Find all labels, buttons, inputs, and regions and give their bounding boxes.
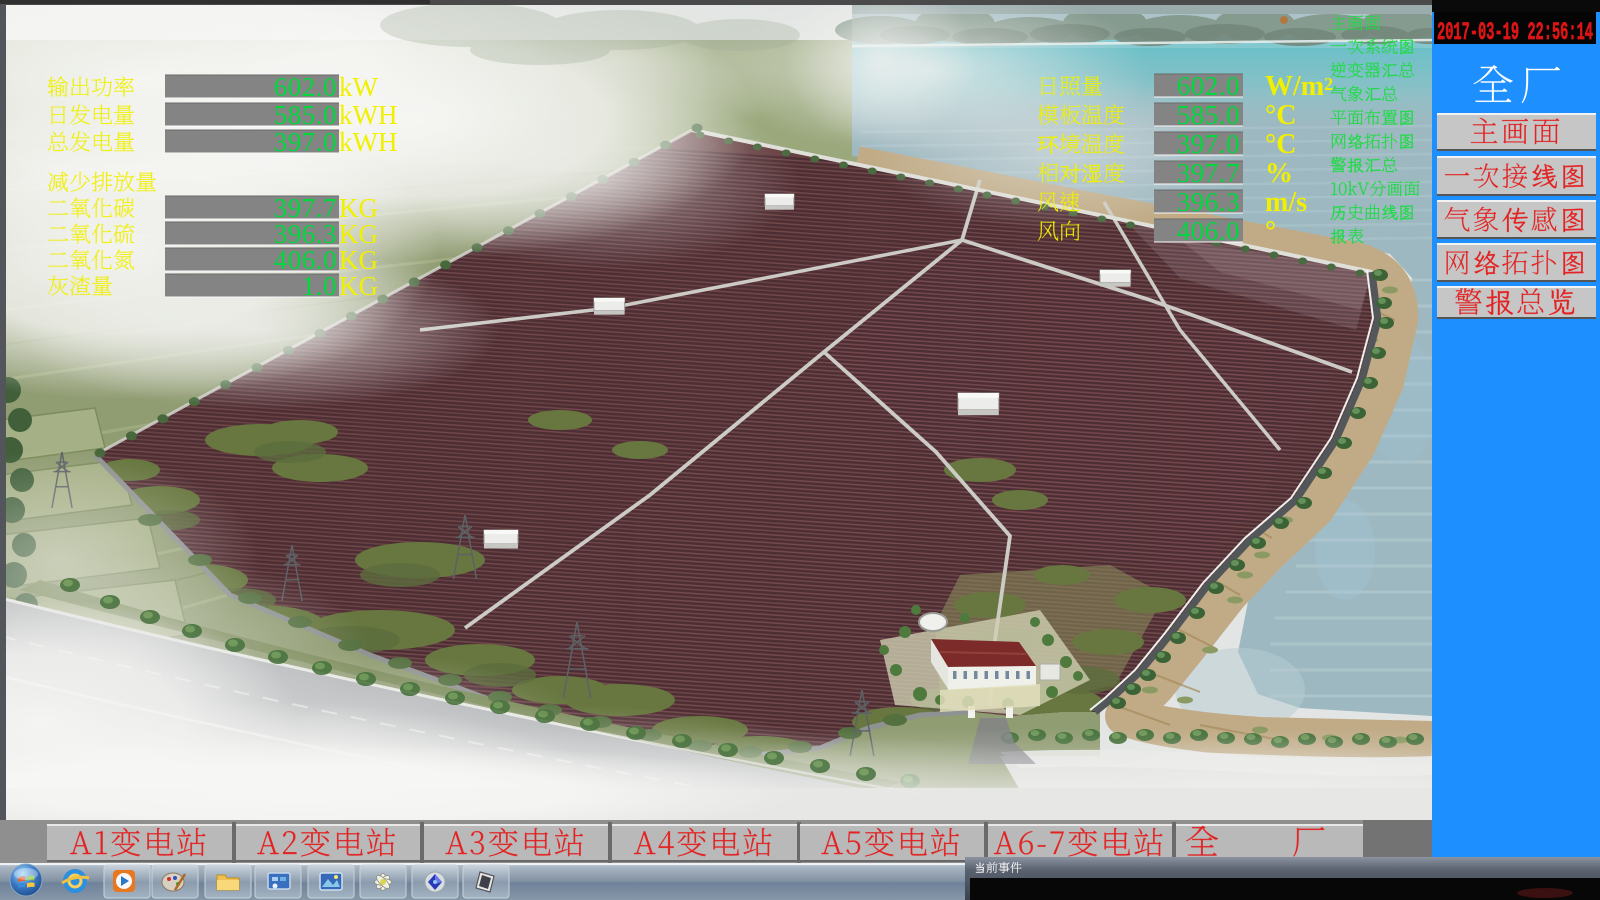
svg-text:396.3: 396.3 [1177,187,1240,217]
svg-text:585.0: 585.0 [1177,100,1240,130]
svg-text:kWH: kWH [339,100,397,130]
svg-text:W/m2: W/m2 [1265,71,1333,102]
svg-text:397.0: 397.0 [1177,129,1240,159]
svg-text:°: ° [1265,216,1276,247]
svg-text:kW: kW [339,72,379,102]
svg-text:KG: KG [339,271,378,301]
svg-text:585.0: 585.0 [274,100,337,130]
svg-text:°C: °C [1265,129,1296,160]
svg-text:397.7: 397.7 [1177,158,1240,188]
svg-text:406.0: 406.0 [1177,216,1240,246]
svg-text:°C: °C [1265,100,1296,131]
svg-text:1.0: 1.0 [302,271,337,301]
svg-text:2017-03-19 22:56:14: 2017-03-19 22:56:14 [1437,18,1593,47]
svg-text:397.0: 397.0 [274,127,337,157]
svg-text:%: % [1265,158,1293,189]
svg-text:m/s: m/s [1265,187,1307,218]
svg-text:602.0: 602.0 [274,72,337,102]
svg-text:kWH: kWH [339,127,397,157]
svg-text:602.0: 602.0 [1177,71,1240,101]
